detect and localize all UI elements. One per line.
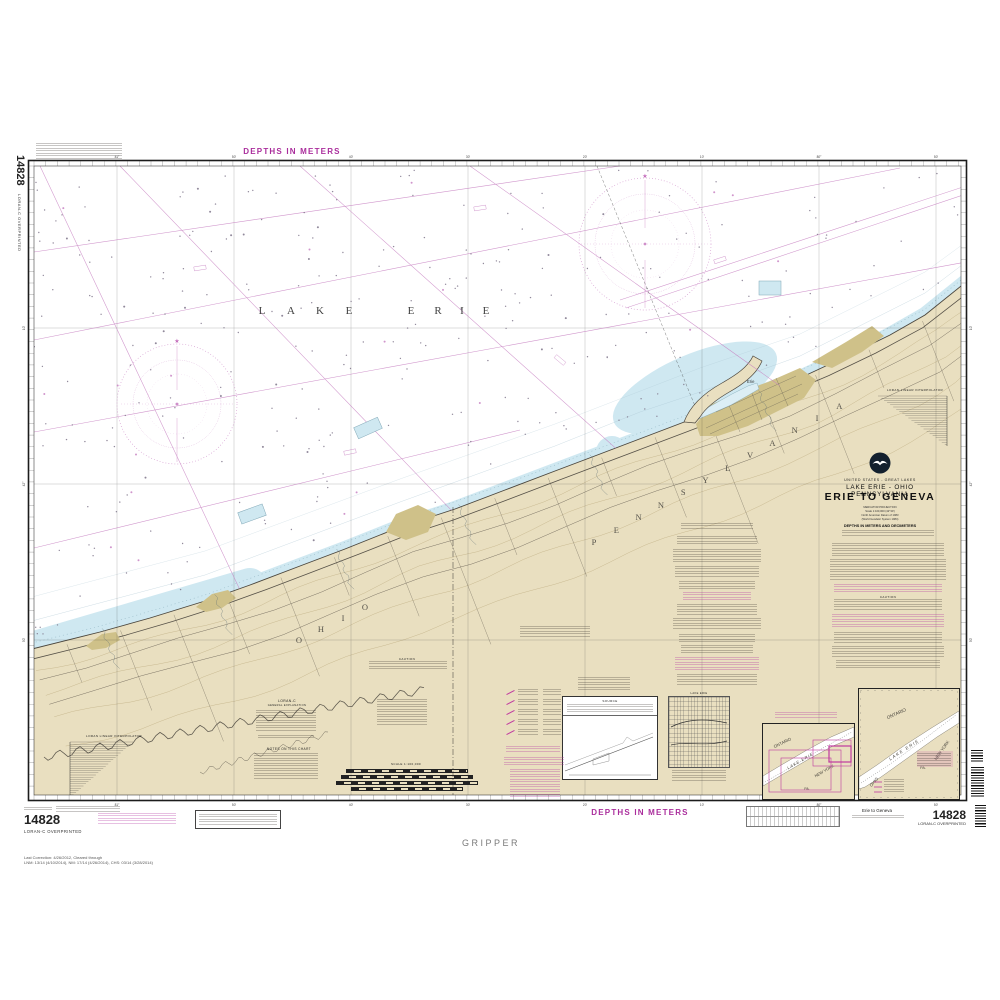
scale-bar	[351, 787, 463, 791]
note-text-block	[673, 549, 761, 562]
north-star-icon: ★	[642, 173, 647, 180]
graticule-degree-label: 50'	[22, 638, 26, 642]
legend-text	[518, 689, 538, 695]
corrections-note: Last Correction: 4/26/2012, Cleared thro…	[24, 855, 153, 865]
legend-text	[518, 699, 538, 705]
legend-text	[543, 689, 561, 695]
legend-text	[518, 729, 538, 735]
graticule-degree-label: 81°	[115, 803, 120, 807]
chart-number-left-rotated: 14828	[14, 155, 26, 186]
noaa-logo	[868, 451, 892, 475]
graticule-degree-label: 80°	[817, 155, 822, 159]
graticule-degree-label: 20'	[583, 155, 587, 159]
scale-bar	[336, 781, 478, 785]
note-text-block	[683, 592, 751, 600]
note-text-block	[677, 674, 757, 686]
chart-number-bottom-right: 14828	[928, 808, 966, 822]
title-region: UNITED STATES - GREAT LAKES	[844, 478, 916, 482]
graticule-degree-label: 40'	[349, 803, 353, 807]
note-text-block	[830, 559, 946, 581]
plotter-name: GRIPPER	[462, 838, 520, 848]
note-text-block	[377, 699, 427, 725]
top-depth-units-label: DEPTHS IN METERS	[243, 147, 340, 156]
inset-label-ontario: ONTARIO	[886, 707, 907, 720]
overprint-bottom-right: LORAN-C OVERPRINTED	[916, 821, 966, 826]
imprint-line	[24, 807, 52, 812]
north-star-icon: ★	[174, 338, 179, 345]
inset-label-newyork: NEW YORK	[814, 763, 836, 778]
graticule-degree-label: 10'	[22, 326, 26, 330]
channel-line	[597, 166, 695, 406]
agency-note-box	[195, 810, 281, 829]
graticule-degree-label: 50'	[934, 155, 938, 159]
general-explanation-heading: GENERAL EXPLANATION	[268, 704, 307, 707]
small-title-bottom: Erie to Geneva	[862, 808, 892, 813]
note-text-block	[832, 543, 944, 556]
interpolator-label-sw: LORAN LINEAR INTERPOLATOR	[86, 734, 142, 738]
graticule-degree-label: 30'	[466, 803, 470, 807]
note-text-block	[510, 769, 560, 797]
graticule-degree-label: 30'	[466, 155, 470, 159]
loran-c-heading: LORAN-C	[278, 699, 296, 703]
graticule-degree-label: 50'	[232, 155, 236, 159]
color-calibration-strip	[746, 806, 840, 827]
legend-text	[543, 699, 561, 705]
graticule-degree-label: 10'	[700, 155, 704, 159]
interpolator-label-ne: LORAN-LINEAR INTERPOLATOR	[887, 388, 943, 392]
inset-label-pa: PA.	[804, 787, 810, 791]
note-text-block	[677, 604, 757, 615]
chart-number-bottom-left: 14828	[24, 812, 60, 827]
graticule-degree-label: 20'	[583, 803, 587, 807]
inset-caption	[775, 712, 837, 719]
note-text-block	[578, 677, 630, 692]
barcode	[975, 805, 986, 827]
title-projection: MERCATOR PROJECTION	[863, 506, 896, 509]
magenta-margin-note	[98, 813, 176, 824]
title-main: ERIE TO GENEVA	[825, 491, 936, 503]
note-text-block	[256, 710, 316, 731]
note-text-block	[679, 634, 755, 642]
compass-rose-center: ★	[579, 173, 711, 310]
note-text-block	[832, 646, 944, 657]
title-datum2: (World Geodetic System 1984)	[862, 518, 899, 521]
note-text-block	[672, 770, 726, 782]
inset-label-ontario: ONTARIO	[773, 736, 793, 749]
graticule-degree-label: 81°	[115, 155, 120, 159]
graticule-degree-label: 42°	[969, 482, 973, 487]
small-title-subline	[852, 815, 904, 819]
graticule-degree-label: 50'	[934, 803, 938, 807]
legend-text	[543, 709, 561, 715]
note-text-block	[681, 523, 753, 530]
note-text-block	[679, 581, 755, 589]
overprint-bottom-left: LORAN-C OVERPRINTED	[24, 829, 82, 834]
barcode	[971, 750, 983, 763]
lake-profile-heading: LAKE ERIE	[690, 692, 707, 695]
top-left-note	[36, 143, 122, 159]
imprint-line	[56, 806, 120, 813]
note-text-block	[677, 536, 757, 545]
note-text-block	[369, 661, 447, 671]
note-text-block	[836, 660, 940, 669]
barcode	[971, 767, 984, 797]
source-diagram-box: SOURCE	[562, 696, 658, 780]
note-text-block	[681, 645, 753, 653]
note-text-block	[675, 566, 759, 577]
graticule-degree-label: 50'	[232, 803, 236, 807]
title-scale: Scale 1:100,000 (42°30')	[865, 510, 895, 513]
graticule-degree-label: 10'	[969, 326, 973, 330]
note-text-block	[506, 746, 560, 753]
title-datum: North American Datum of 1983	[862, 514, 899, 517]
lake-profile-grid	[668, 696, 730, 768]
notes-on-chart-heading: NOTES ON THIS CHART	[267, 747, 311, 751]
note-text-block	[832, 614, 944, 629]
note-text-block	[258, 735, 314, 739]
corrections-line2: LNM: 13/14 (4/10/2014), NM: 17/14 (4/26/…	[24, 860, 153, 865]
scale-bar	[341, 775, 473, 779]
note-text-block	[834, 632, 942, 643]
note-text-block	[834, 599, 942, 610]
inset-map-general: ONTARIO LAKE ERIE NEW YORK PA. OHIO	[858, 688, 960, 800]
note-text-block	[675, 657, 759, 671]
note-text-block	[834, 584, 942, 592]
graticule-degree-label: 42°	[22, 482, 26, 487]
title-subnote	[842, 530, 934, 536]
graticule-degree-label: 40'	[349, 155, 353, 159]
compass-rose-west: ★	[117, 338, 237, 464]
note-text-block	[673, 618, 761, 630]
title-depth-unit: DEPTHS IN METERS AND DECIMETERS	[844, 524, 916, 528]
note-text-block	[254, 753, 318, 779]
legend-text	[543, 719, 561, 725]
legend-text	[518, 719, 538, 725]
graticule-degree-label: 10'	[700, 803, 704, 807]
nautical-chart-page: { "colors":{"magenta":"#aa2d9c","loran":…	[0, 0, 1000, 1000]
scale-bar-heading: SCALE 1:100,000	[391, 762, 421, 766]
legend-text	[518, 709, 538, 715]
source-heading: SOURCE	[602, 699, 617, 703]
note-text-block	[504, 757, 564, 765]
overprint-left-rotated: LORAN-C OVERPRINTED	[17, 194, 22, 252]
bottom-depth-units-label: DEPTHS IN METERS	[591, 808, 688, 817]
erie-city-label: Erie	[747, 379, 754, 384]
graticule-degree-label: 80°	[817, 803, 822, 807]
legend-text	[543, 729, 561, 735]
note-text-block	[520, 626, 590, 637]
inset-map-coverage: ONTARIO LAKE ERIE NEW YORK PA.	[762, 723, 855, 800]
graticule-degree-label: 50'	[969, 638, 973, 642]
scale-bar	[346, 769, 468, 773]
